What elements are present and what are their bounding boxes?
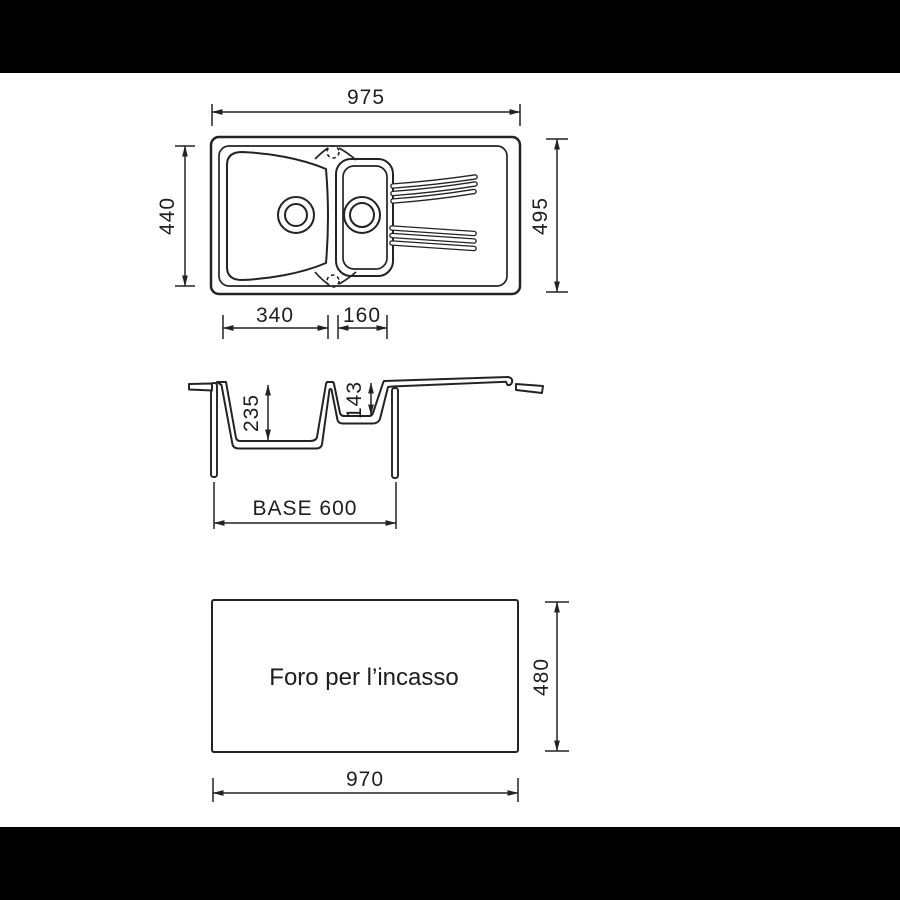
technical-drawing: 975 440 495 340 160 xyxy=(0,0,900,900)
dim-label-440: 440 xyxy=(156,197,179,235)
cabinet-leg-right xyxy=(392,388,398,478)
dim-label-340: 340 xyxy=(256,304,294,327)
cutout-caption: Foro per l’incasso xyxy=(269,664,458,691)
dim-label-970: 970 xyxy=(346,768,384,791)
dim-label-480: 480 xyxy=(530,658,553,696)
dim-label-235: 235 xyxy=(240,394,263,432)
rim-lip-left xyxy=(189,384,212,391)
letterbox-top xyxy=(0,0,900,73)
cabinet-leg-left xyxy=(211,383,217,477)
dim-label-495: 495 xyxy=(529,197,552,235)
dim-label-160: 160 xyxy=(343,304,381,327)
sink-technical-drawing-page: 975 440 495 340 160 xyxy=(0,0,900,900)
letterbox-bottom xyxy=(0,827,900,900)
dim-label-975: 975 xyxy=(347,86,385,109)
drawing-background xyxy=(0,0,900,900)
dim-label-143: 143 xyxy=(343,381,366,419)
dim-label-base-600: BASE 600 xyxy=(253,497,358,520)
